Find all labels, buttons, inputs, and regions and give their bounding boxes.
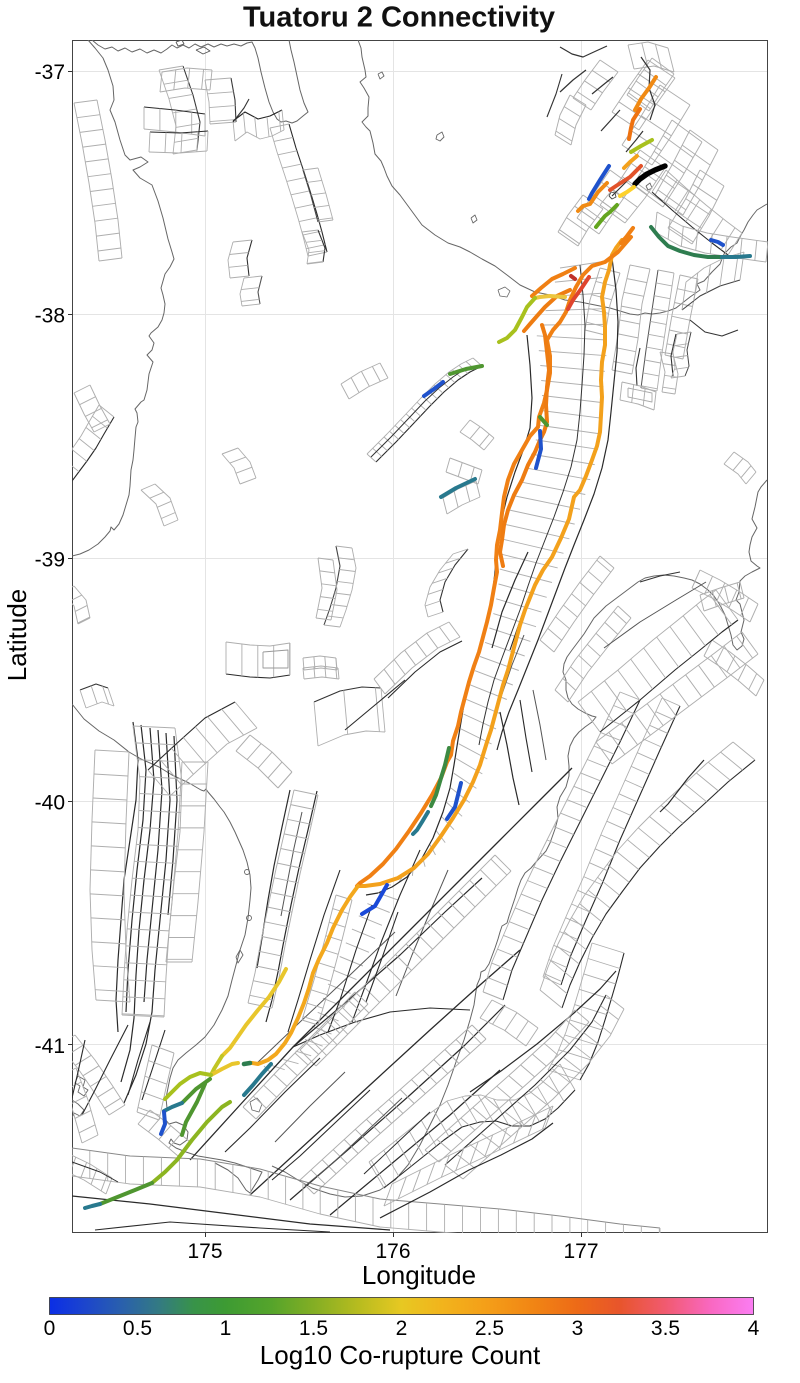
svg-text:Longitude: Longitude [362, 1260, 476, 1290]
svg-text:3: 3 [572, 1317, 584, 1340]
svg-text:-41: -41 [35, 1035, 65, 1058]
svg-text:3.5: 3.5 [651, 1317, 680, 1340]
svg-text:0.5: 0.5 [123, 1317, 152, 1340]
svg-text:2: 2 [396, 1317, 408, 1340]
svg-text:-37: -37 [35, 61, 65, 84]
svg-text:1: 1 [220, 1317, 232, 1340]
svg-text:175: 175 [187, 1240, 222, 1263]
svg-text:0: 0 [44, 1317, 56, 1340]
svg-text:Tuatoru 2 Connectivity: Tuatoru 2 Connectivity [243, 2, 555, 34]
svg-text:Log10 Co-rupture Count: Log10 Co-rupture Count [260, 1340, 541, 1370]
svg-text:2.5: 2.5 [475, 1317, 504, 1340]
svg-text:-38: -38 [35, 305, 65, 328]
svg-text:Latitude: Latitude [2, 589, 32, 682]
svg-text:177: 177 [563, 1240, 598, 1263]
svg-text:1.5: 1.5 [299, 1317, 328, 1340]
svg-text:4: 4 [748, 1317, 760, 1340]
svg-text:-40: -40 [35, 792, 65, 815]
svg-text:-39: -39 [35, 549, 65, 572]
